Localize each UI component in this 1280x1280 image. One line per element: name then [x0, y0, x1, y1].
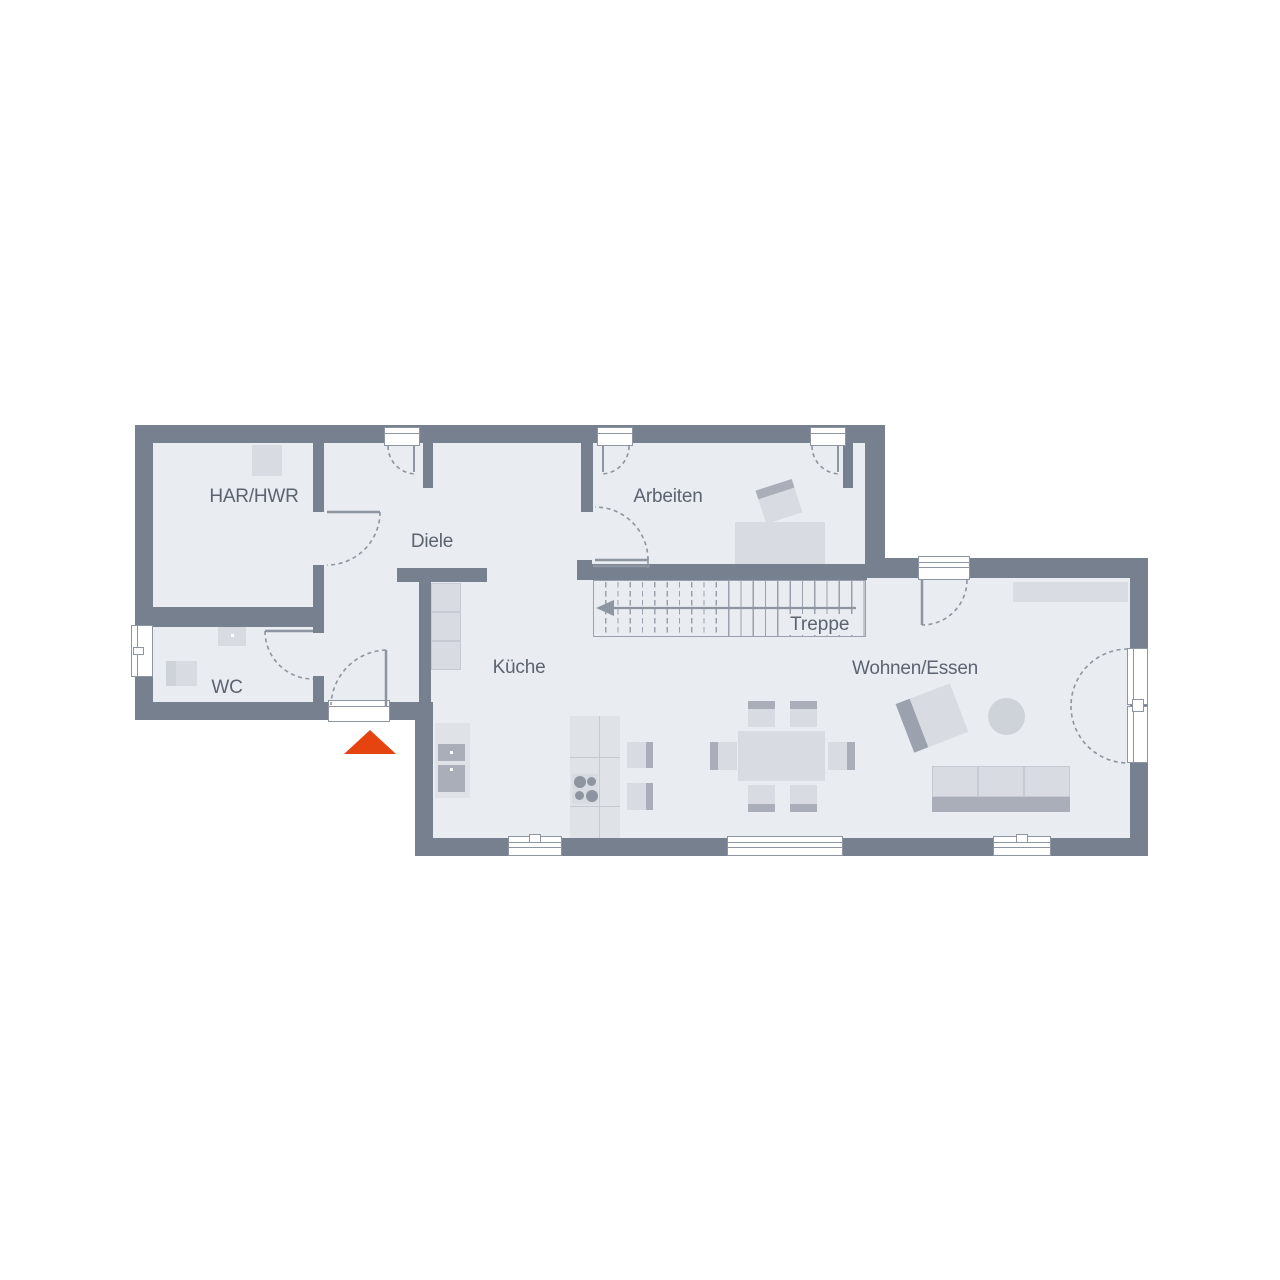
entrance-triangle-icon: [344, 730, 396, 754]
wall-diele-kueche: [419, 582, 431, 702]
chair-backrest: [710, 742, 718, 770]
french-door-handle: [1132, 699, 1144, 712]
side-table: [988, 698, 1025, 735]
window-wc-handle: [133, 647, 144, 655]
kitchen-island: [570, 716, 620, 838]
wall-stub-window1: [423, 443, 433, 488]
window-top-3: [810, 427, 846, 446]
chair-backrest: [748, 701, 775, 709]
island-divider-h1: [570, 757, 620, 758]
wall-step-top: [867, 558, 1148, 578]
room-label-treppe: Treppe: [787, 614, 853, 635]
wall-top: [135, 425, 885, 443]
window-top-2: [597, 427, 633, 446]
washing-machine: [252, 445, 282, 476]
dining-chair: [790, 701, 817, 727]
cooktop: [572, 774, 598, 804]
bar-stool-backrest: [646, 742, 653, 768]
dining-chair: [828, 742, 855, 770]
sofa-cushion: [978, 766, 1024, 797]
wall-arbeiten-right: [865, 425, 885, 578]
room-label-wc: WC: [211, 677, 242, 699]
wall-har-right-lower: [313, 565, 324, 607]
dining-chair: [748, 785, 775, 812]
sofa: [932, 766, 1070, 812]
french-door-sash-upper: [1127, 648, 1148, 705]
desk: [735, 522, 825, 570]
wall-stair-step: [577, 560, 592, 580]
french-door-sash-lower: [1127, 706, 1148, 763]
door-threshold-wohnen: [918, 556, 970, 580]
cooktop-burner: [574, 776, 586, 788]
dining-chair: [748, 701, 775, 727]
floor-plan: Treppe: [0, 0, 1280, 1280]
cooktop-burner: [575, 791, 584, 800]
wc-toilet-tank: [166, 661, 176, 686]
bar-stool: [627, 742, 653, 768]
window-handle: [1016, 834, 1028, 843]
wall-wc-right-upper: [313, 627, 324, 633]
window-bottom-essen: [727, 836, 843, 856]
dining-chair: [710, 742, 737, 770]
wall-stub-window3: [843, 443, 853, 488]
window-top-1: [384, 427, 420, 446]
entrance-threshold: [328, 700, 390, 722]
staircase-dashed-treads: [594, 581, 721, 636]
window-handle: [529, 834, 541, 843]
wall-diele-tbar: [397, 568, 487, 582]
kitchen-sink-drain: [450, 751, 453, 754]
wall-arbeiten-door: [581, 443, 593, 512]
kitchen-tall-cabinets: [431, 583, 461, 670]
kitchen-oven-knob: [450, 768, 453, 771]
wall-stair: [577, 564, 867, 580]
sofa-cushion: [1024, 766, 1070, 797]
room-label-arbeiten: Arbeiten: [633, 486, 702, 508]
sofa-cushion: [932, 766, 978, 797]
chair-backrest: [790, 804, 817, 812]
wc-sink-drain: [231, 634, 234, 637]
wall-wc-right-lower: [313, 676, 324, 702]
room-label-wohnen-essen: Wohnen/Essen: [852, 658, 978, 680]
bar-stool-backrest: [646, 783, 653, 810]
chair-backrest: [847, 742, 855, 770]
wall-har-right-upper: [313, 443, 324, 512]
wall-har-bottom: [135, 607, 324, 627]
room-label-har-hwr: HAR/HWR: [209, 486, 298, 508]
sofa-backrest: [932, 797, 1070, 812]
island-divider-v: [599, 716, 600, 838]
staircase: Treppe: [593, 580, 866, 637]
bar-stool: [627, 783, 653, 810]
room-label-diele: Diele: [411, 531, 453, 553]
island-divider-h2: [570, 806, 620, 807]
cooktop-burner: [586, 790, 598, 802]
wall-kitchen-left: [415, 702, 433, 856]
cooktop-burner: [587, 777, 596, 786]
dining-table: [738, 731, 825, 781]
sideboard: [1013, 582, 1128, 602]
chair-backrest: [790, 701, 817, 709]
room-label-kueche: Küche: [493, 657, 546, 679]
chair-backrest: [748, 804, 775, 812]
dining-chair: [790, 785, 817, 812]
